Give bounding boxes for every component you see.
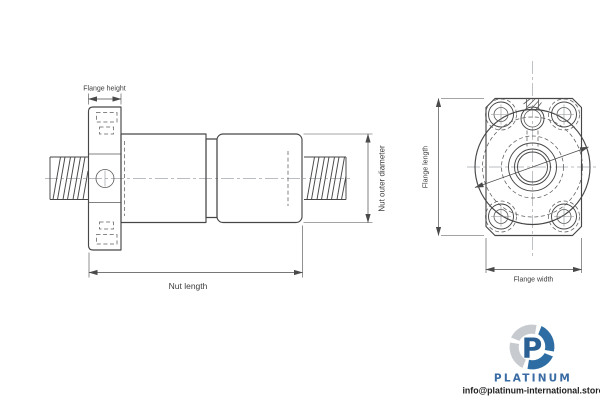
dim-flange-height: Flange height <box>83 86 125 105</box>
platinum-logo: P PLATINUM info@platinum-international.s… <box>462 318 600 396</box>
hidden-bolt-hole-bottom <box>97 235 118 245</box>
flange-height-label: Flange height <box>83 86 125 93</box>
platinum-logo-icon: P <box>503 318 561 376</box>
logo-email: info@platinum-international.store <box>462 386 600 396</box>
logo-wordmark: PLATINUM <box>494 373 572 385</box>
ballscrew-nut-drawing: Flange height Nut outer diameter Nut len… <box>0 0 600 400</box>
front-view: Flange length Flange width <box>423 61 599 284</box>
bolt-hole-top-right <box>549 99 580 130</box>
hidden-bolt-hole-bottom-inner <box>100 222 114 229</box>
dim-flange-width: Flange width <box>486 238 582 284</box>
bolt-hole-top-left <box>486 99 517 130</box>
technical-drawing-page: Flange height Nut outer diameter Nut len… <box>0 0 600 400</box>
flange-width-label: Flange width <box>514 277 554 284</box>
flange-length-label: Flange length <box>423 146 430 189</box>
nut-outer-diameter-label: Nut outer diameter <box>378 145 387 212</box>
logo-letter: P <box>522 332 543 365</box>
hidden-bolt-hole-top-inner <box>100 127 114 134</box>
side-view: Flange height Nut outer diameter Nut len… <box>45 86 387 292</box>
hidden-bolt-hole-top <box>97 113 118 123</box>
nut-length-label: Nut length <box>169 281 208 291</box>
